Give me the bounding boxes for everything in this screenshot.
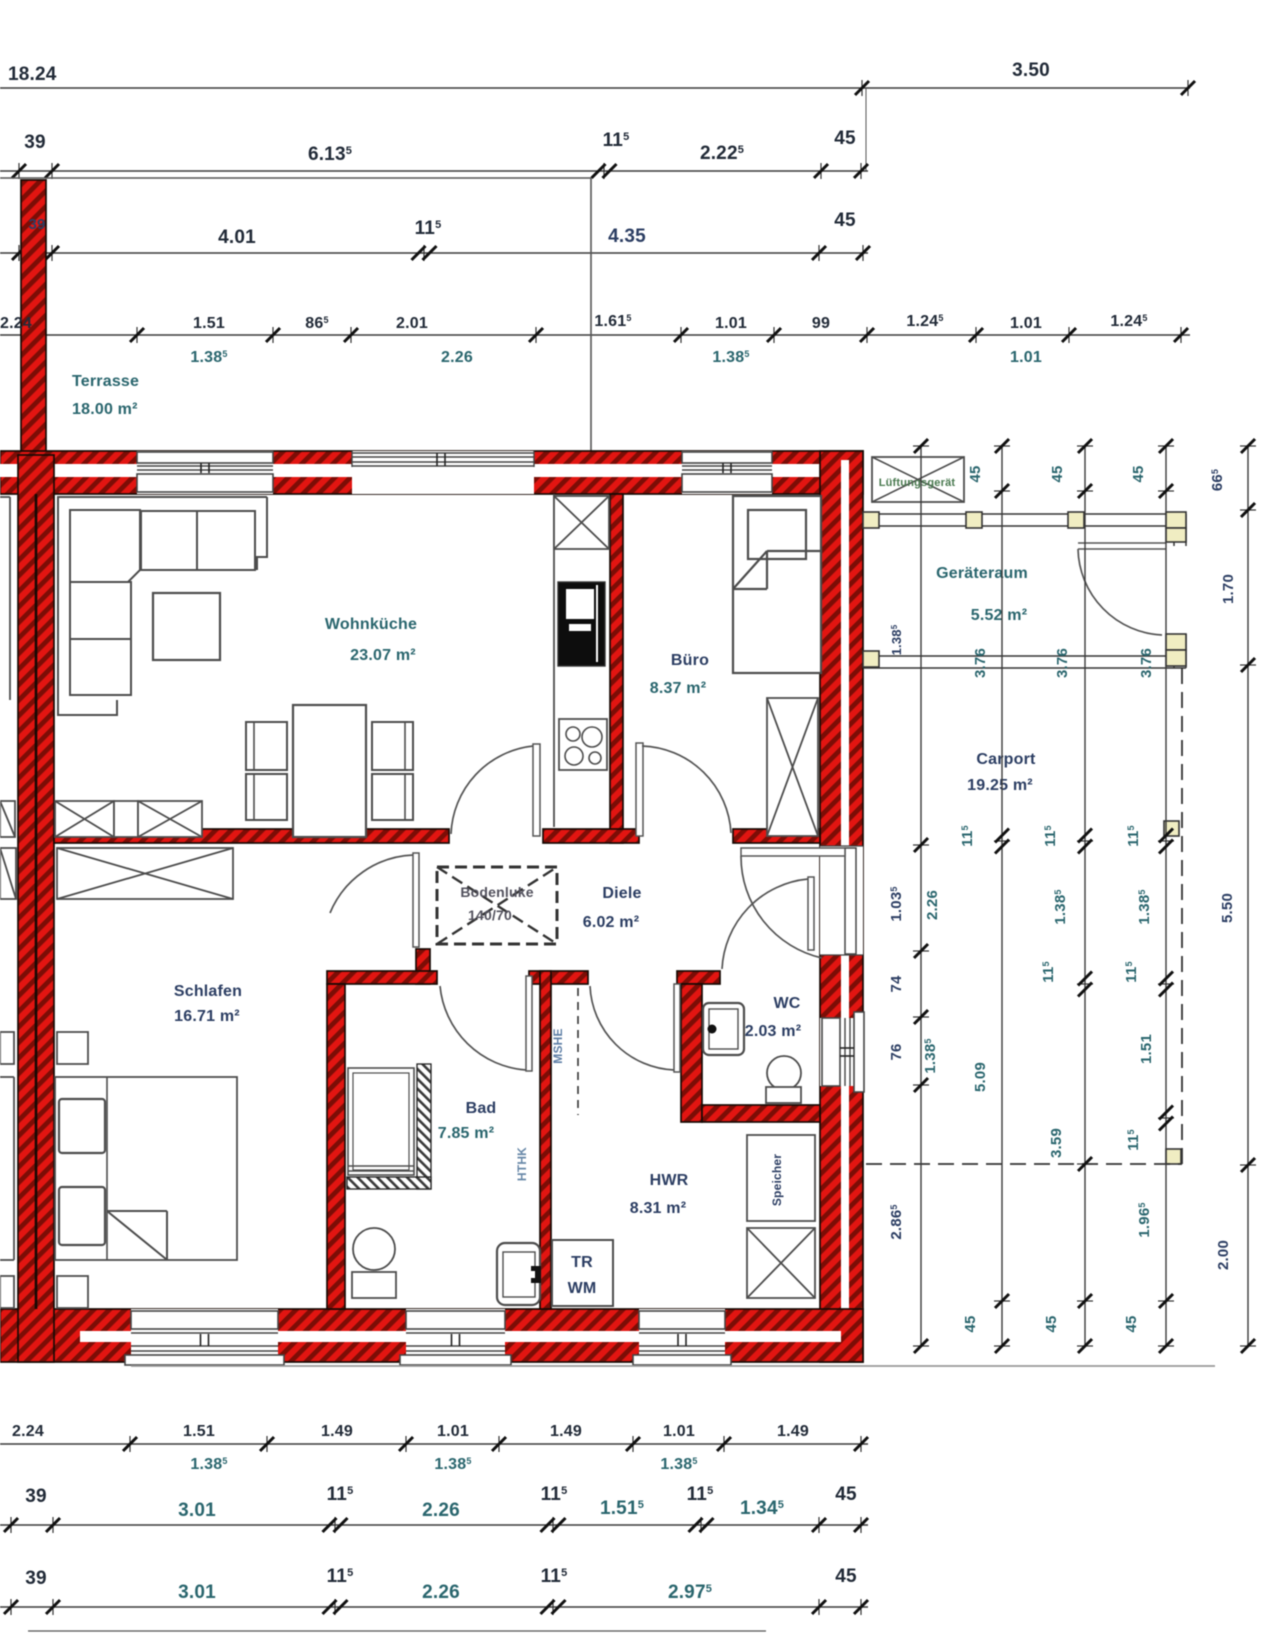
svg-text:6.02 m²: 6.02 m² xyxy=(583,914,640,931)
svg-text:WM: WM xyxy=(568,1280,597,1297)
svg-text:2.24: 2.24 xyxy=(12,1423,44,1440)
svg-text:3.01: 3.01 xyxy=(178,1500,216,1521)
svg-text:Geräteraum: Geräteraum xyxy=(936,565,1028,582)
svg-text:23.07 m²: 23.07 m² xyxy=(350,647,416,664)
svg-text:39: 39 xyxy=(24,132,46,153)
svg-text:6.135: 6.135 xyxy=(308,144,352,165)
svg-text:2.225: 2.225 xyxy=(700,143,744,164)
svg-text:2.03 m²: 2.03 m² xyxy=(745,1023,802,1040)
svg-text:1.245: 1.245 xyxy=(1110,313,1147,330)
svg-text:5.09: 5.09 xyxy=(972,1062,989,1092)
svg-text:7.85 m²: 7.85 m² xyxy=(438,1125,495,1142)
svg-text:45: 45 xyxy=(1049,465,1066,482)
svg-text:45: 45 xyxy=(835,1566,857,1587)
svg-text:18.24: 18.24 xyxy=(8,64,57,85)
svg-text:1.51: 1.51 xyxy=(193,315,225,332)
svg-text:74: 74 xyxy=(888,975,905,993)
svg-text:1.385: 1.385 xyxy=(1136,889,1153,924)
svg-text:140/70: 140/70 xyxy=(468,907,512,923)
svg-text:2.975: 2.975 xyxy=(668,1582,712,1603)
svg-text:Bad: Bad xyxy=(466,1100,497,1117)
svg-text:Carport: Carport xyxy=(976,751,1036,768)
svg-text:1.01: 1.01 xyxy=(1010,315,1042,332)
svg-text:1.345: 1.345 xyxy=(740,1498,784,1519)
svg-text:3.59: 3.59 xyxy=(1048,1128,1065,1158)
svg-text:1.49: 1.49 xyxy=(777,1423,809,1440)
svg-text:1.385: 1.385 xyxy=(660,1456,697,1473)
svg-text:2.26: 2.26 xyxy=(924,890,941,920)
svg-text:Lüftungsgerät: Lüftungsgerät xyxy=(879,477,956,489)
svg-text:45: 45 xyxy=(1043,1315,1060,1332)
svg-text:Büro: Büro xyxy=(671,652,709,669)
svg-text:Bodenluke: Bodenluke xyxy=(460,884,533,900)
svg-text:1.385: 1.385 xyxy=(190,1456,227,1473)
svg-text:Speicher: Speicher xyxy=(770,1154,784,1206)
svg-text:5.50: 5.50 xyxy=(1219,893,1236,923)
svg-text:3.76: 3.76 xyxy=(1138,648,1155,678)
svg-text:45: 45 xyxy=(962,1315,979,1332)
svg-text:4.01: 4.01 xyxy=(218,227,256,248)
svg-text:1.245: 1.245 xyxy=(906,313,943,330)
svg-text:MSHE: MSHE xyxy=(551,1028,565,1063)
svg-text:1.385: 1.385 xyxy=(1052,889,1069,924)
svg-text:45: 45 xyxy=(967,465,984,482)
svg-text:1.385: 1.385 xyxy=(712,349,749,366)
svg-text:1.515: 1.515 xyxy=(600,1498,644,1519)
svg-text:HTHK: HTHK xyxy=(515,1147,529,1181)
svg-text:3.76: 3.76 xyxy=(1054,648,1071,678)
svg-text:HWR: HWR xyxy=(650,1172,689,1189)
svg-text:2.26: 2.26 xyxy=(441,349,473,366)
svg-text:1.965: 1.965 xyxy=(1136,1202,1153,1237)
svg-text:19.25 m²: 19.25 m² xyxy=(967,777,1033,794)
svg-text:1.01: 1.01 xyxy=(437,1423,469,1440)
svg-text:1.385: 1.385 xyxy=(190,349,227,366)
svg-text:2.26: 2.26 xyxy=(422,1500,460,1521)
svg-text:8.37 m²: 8.37 m² xyxy=(650,680,707,697)
svg-text:2.00: 2.00 xyxy=(1215,1240,1232,1270)
svg-text:2.01: 2.01 xyxy=(396,315,428,332)
svg-text:1.49: 1.49 xyxy=(321,1423,353,1440)
svg-text:1.51: 1.51 xyxy=(1138,1034,1155,1064)
svg-text:45: 45 xyxy=(834,210,856,231)
svg-text:45: 45 xyxy=(1123,1315,1140,1332)
svg-text:2.24: 2.24 xyxy=(0,315,32,332)
svg-text:1.035: 1.035 xyxy=(888,886,905,921)
svg-text:Terrasse: Terrasse xyxy=(72,373,139,390)
svg-text:1.51: 1.51 xyxy=(183,1423,215,1440)
svg-text:1.49: 1.49 xyxy=(550,1423,582,1440)
svg-text:Schlafen: Schlafen xyxy=(174,983,242,1000)
svg-text:Wohnküche: Wohnküche xyxy=(325,616,417,633)
svg-text:TR: TR xyxy=(571,1254,593,1271)
svg-text:45: 45 xyxy=(834,128,856,149)
svg-text:3.01: 3.01 xyxy=(178,1582,216,1603)
svg-text:1.615: 1.615 xyxy=(594,313,631,330)
svg-text:5.52 m²: 5.52 m² xyxy=(971,607,1028,624)
svg-text:2.26: 2.26 xyxy=(422,1582,460,1603)
svg-text:76: 76 xyxy=(888,1043,905,1060)
svg-text:99: 99 xyxy=(812,315,830,332)
svg-text:4.35: 4.35 xyxy=(608,226,646,247)
svg-text:39: 39 xyxy=(28,216,45,233)
svg-text:3.76: 3.76 xyxy=(972,648,989,678)
svg-text:45: 45 xyxy=(1130,465,1147,482)
svg-text:8.31 m²: 8.31 m² xyxy=(630,1200,687,1217)
svg-text:3.50: 3.50 xyxy=(1012,60,1050,81)
svg-text:1.01: 1.01 xyxy=(715,315,747,332)
svg-text:45: 45 xyxy=(835,1484,857,1505)
svg-text:WC: WC xyxy=(773,995,800,1012)
svg-text:Diele: Diele xyxy=(602,885,641,902)
svg-text:1.01: 1.01 xyxy=(1010,349,1042,366)
svg-text:18.00 m²: 18.00 m² xyxy=(72,401,138,418)
svg-text:2.865: 2.865 xyxy=(888,1204,905,1239)
svg-text:1.01: 1.01 xyxy=(663,1423,695,1440)
svg-text:39: 39 xyxy=(25,1568,47,1589)
svg-text:1.385: 1.385 xyxy=(434,1456,471,1473)
svg-text:1.70: 1.70 xyxy=(1220,574,1237,604)
svg-text:1.385: 1.385 xyxy=(922,1038,939,1073)
svg-text:39: 39 xyxy=(25,1486,47,1507)
svg-text:16.71 m²: 16.71 m² xyxy=(174,1008,240,1025)
